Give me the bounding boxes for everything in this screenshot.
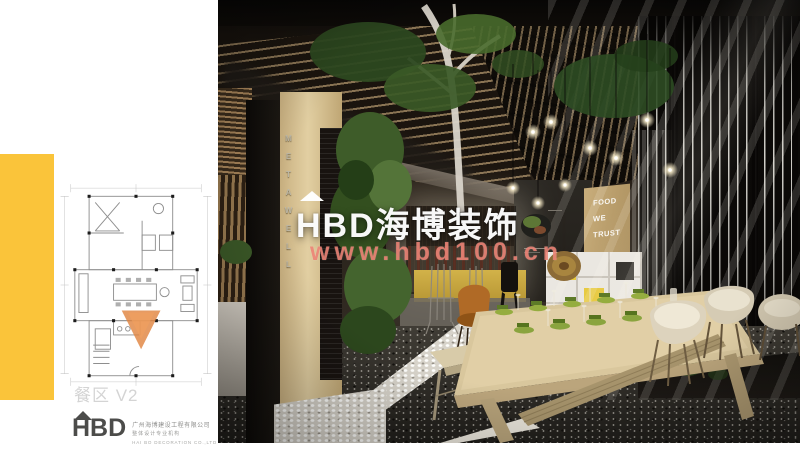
- plan-dimension-lines: [61, 184, 212, 386]
- plan-version-label: 餐区 V2: [74, 381, 139, 406]
- camera-view-marker: [122, 310, 161, 349]
- company-text: 广州海博建设工程有限公司 整体设计专业机构 HAI BO DECORATION …: [132, 416, 217, 445]
- roof-icon: [74, 411, 92, 420]
- presentation-board: 餐区 V2 HBD 广州海博建设工程有限公司 整体设计专业机构 HAI BO D…: [0, 0, 800, 476]
- plan-walls: [75, 196, 197, 375]
- watermark-url: www.hbd100.cn: [310, 238, 563, 267]
- company-subtitle: 整体设计专业机构: [132, 430, 217, 437]
- company-name-en: HAI BO DECORATION CO.,LTD: [132, 440, 217, 445]
- hbd-logo: HBD: [72, 416, 126, 441]
- company-logo-block: HBD 广州海博建设工程有限公司 整体设计专业机构 HAI BO DECORAT…: [72, 416, 217, 445]
- yellow-accent-bar: [0, 154, 54, 400]
- company-name-cn: 广州海博建设工程有限公司: [132, 420, 217, 429]
- floor-plan: [58, 180, 214, 390]
- interior-render: FOOD WE TRUST METAWELL: [218, 0, 800, 443]
- plan-chairs: [116, 278, 152, 307]
- plan-columns: [73, 195, 198, 377]
